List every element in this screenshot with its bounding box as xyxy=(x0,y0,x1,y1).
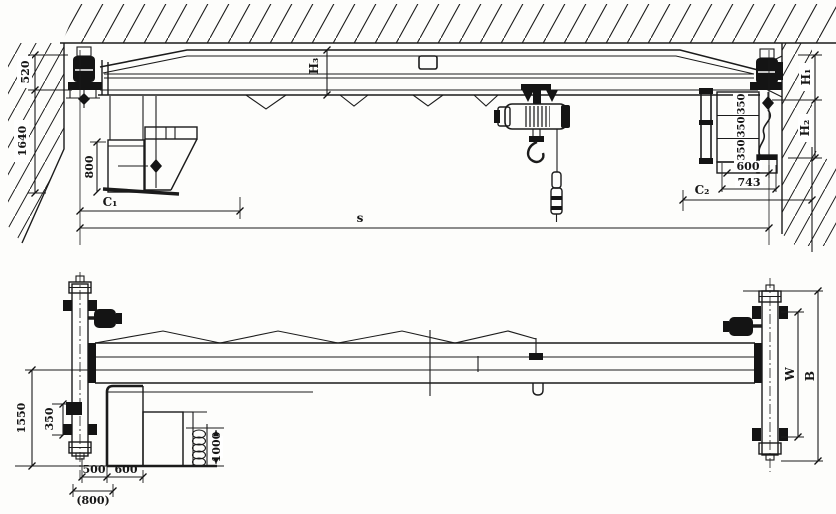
travel-motor-right xyxy=(723,317,762,336)
dim-350-top: 350 xyxy=(737,94,748,115)
dim-w: W xyxy=(783,367,797,382)
travel-motor-left xyxy=(88,309,122,328)
dimension-h3: H₃ xyxy=(307,47,331,99)
plan-view: 1550 350 500 600 (800) 1000 xyxy=(15,272,823,507)
electric-hoist xyxy=(494,84,570,222)
dim-743: 743 xyxy=(738,176,761,189)
dimension-800-alt: (800) xyxy=(70,484,117,507)
walkway-railing-zigzag xyxy=(95,331,543,360)
buffer-plan xyxy=(66,402,82,415)
dim-520: 520 xyxy=(19,60,32,83)
hoist-hook xyxy=(528,129,544,162)
dim-350-plan: 350 xyxy=(43,407,56,430)
dimension-800: 800 xyxy=(83,139,106,196)
mesh-panel xyxy=(143,412,183,466)
dim-c2: C₂ xyxy=(695,183,710,197)
crane-technical-drawing: 520 1640 800 H₃ C₁ s xyxy=(0,0,836,514)
dimension-600-743: 600 743 xyxy=(719,160,780,193)
stiffener-gussets xyxy=(246,95,498,109)
dim-800: 800 xyxy=(83,155,96,178)
wheel-left xyxy=(73,56,95,82)
wheel-right xyxy=(756,58,778,84)
dim-b: B xyxy=(803,371,817,381)
dimension-500-600: 500 600 xyxy=(79,458,147,483)
cable-coil xyxy=(193,430,206,466)
buffer-right xyxy=(775,62,783,80)
dim-h2: H₂ xyxy=(798,120,812,137)
dimension-350-plan: 350 xyxy=(43,401,67,439)
dim-1000: 1000 xyxy=(210,431,223,462)
dimension-span: s xyxy=(77,211,773,232)
dim-c1: C₁ xyxy=(103,195,118,209)
service-platform xyxy=(103,96,197,194)
dim-350-middle: 350 xyxy=(737,117,748,138)
pendant-control xyxy=(551,129,562,222)
dim-1550: 1550 xyxy=(15,402,28,433)
dimension-c1: C₁ xyxy=(77,195,244,219)
girder-inspection-hole xyxy=(419,56,437,69)
dim-h3: H₃ xyxy=(307,58,321,75)
platform-plan xyxy=(15,386,313,466)
girder-plan xyxy=(88,330,762,396)
dim-1640: 1640 xyxy=(16,125,29,156)
dim-span-s: s xyxy=(357,211,364,225)
elevation-view: 520 1640 800 H₃ C₁ s xyxy=(8,4,836,252)
ceiling-hatch xyxy=(60,4,836,43)
dim-600-elevation: 600 xyxy=(737,160,760,173)
rail-left xyxy=(68,82,102,90)
dim-600-plan: 600 xyxy=(115,463,138,476)
ladder-rung-dimensions: 350 350 350 xyxy=(737,94,748,161)
dim-h1: H₁ xyxy=(799,69,813,86)
hoist-position-mark xyxy=(533,383,543,395)
dim-350-bottom: 350 xyxy=(737,140,748,161)
main-girder xyxy=(98,50,760,109)
dim-800-alt: (800) xyxy=(76,494,109,507)
dim-500: 500 xyxy=(83,463,106,476)
